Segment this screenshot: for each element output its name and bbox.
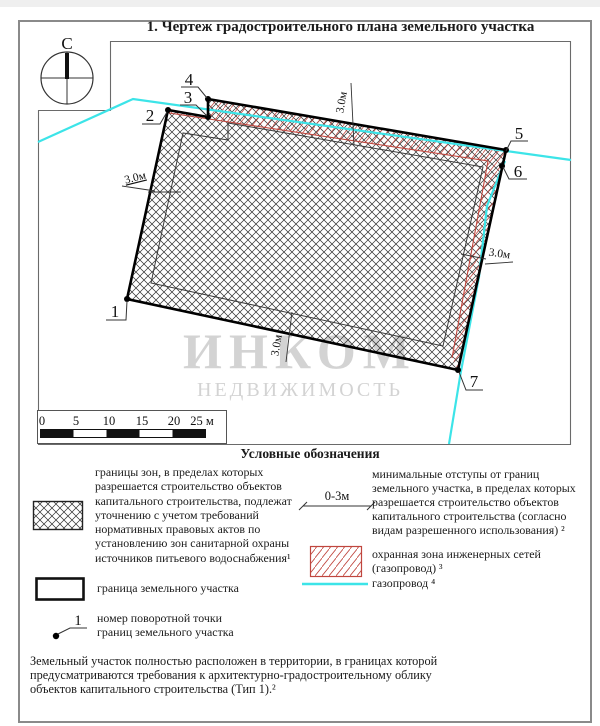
legend-text-parcel-boundary: граница земельного участка [97, 581, 327, 595]
legend-text-allowed-zone: границы зон, в пределах которых разрешае… [95, 465, 327, 565]
footnote: Земельный участок полностью расположен в… [30, 654, 510, 696]
vertex-label-6: 6 [514, 162, 523, 181]
legend-text-pipeline: газопровод ⁴ [372, 576, 522, 590]
legend-turning-point-number: 1 [74, 613, 82, 629]
legend-swatch-allowed-zone [34, 502, 83, 530]
vertex-label-3: 3 [184, 88, 193, 107]
scale-tick-10: 10 [103, 414, 116, 428]
compass-north-label: С [61, 34, 72, 53]
offset-dim-left: 3.0м [123, 169, 148, 186]
compass: С [41, 34, 93, 104]
legend-title: Условные обозначения [205, 446, 415, 462]
legend-text-turning-point: номер поворотной точки границ земельного… [97, 611, 307, 640]
vertex-label-1: 1 [111, 302, 120, 321]
scale-tick-0: 0 [39, 414, 45, 428]
page-title: 1. Чертеж градостроительного плана земел… [110, 19, 571, 36]
vertex-label-2: 2 [146, 106, 155, 125]
vertex-label-7: 7 [470, 372, 479, 391]
offset-dim-bottom: 3.0м [269, 333, 285, 357]
vertex-label-4: 4 [185, 70, 194, 89]
legend-symbol-turning-point: 1 [53, 613, 87, 639]
vertex-label-5: 5 [515, 124, 524, 143]
scale-tick-5: 5 [73, 414, 79, 428]
legend-text-pipeline-zone: охранная зона инженерных сетей (газопров… [372, 547, 598, 576]
scale-tick-20: 20 [168, 414, 181, 428]
legend-min-offset-label: 0-3м [325, 489, 350, 503]
scale-tick-25: 25 м [190, 414, 214, 428]
legend-swatch-parcel-boundary [37, 579, 84, 600]
offset-dim-right: 3.0м [488, 247, 512, 262]
offset-dim-top: 3.0м [334, 90, 350, 114]
legend-text-min-offsets: минимальные отступы от границ земельного… [372, 468, 598, 538]
scale-tick-15: 15 [136, 414, 149, 428]
document-page: ИНКОМ НЕДВИЖИМОСТЬ С [0, 0, 600, 726]
scale-bar: 0 5 10 15 20 25 м [38, 411, 227, 444]
